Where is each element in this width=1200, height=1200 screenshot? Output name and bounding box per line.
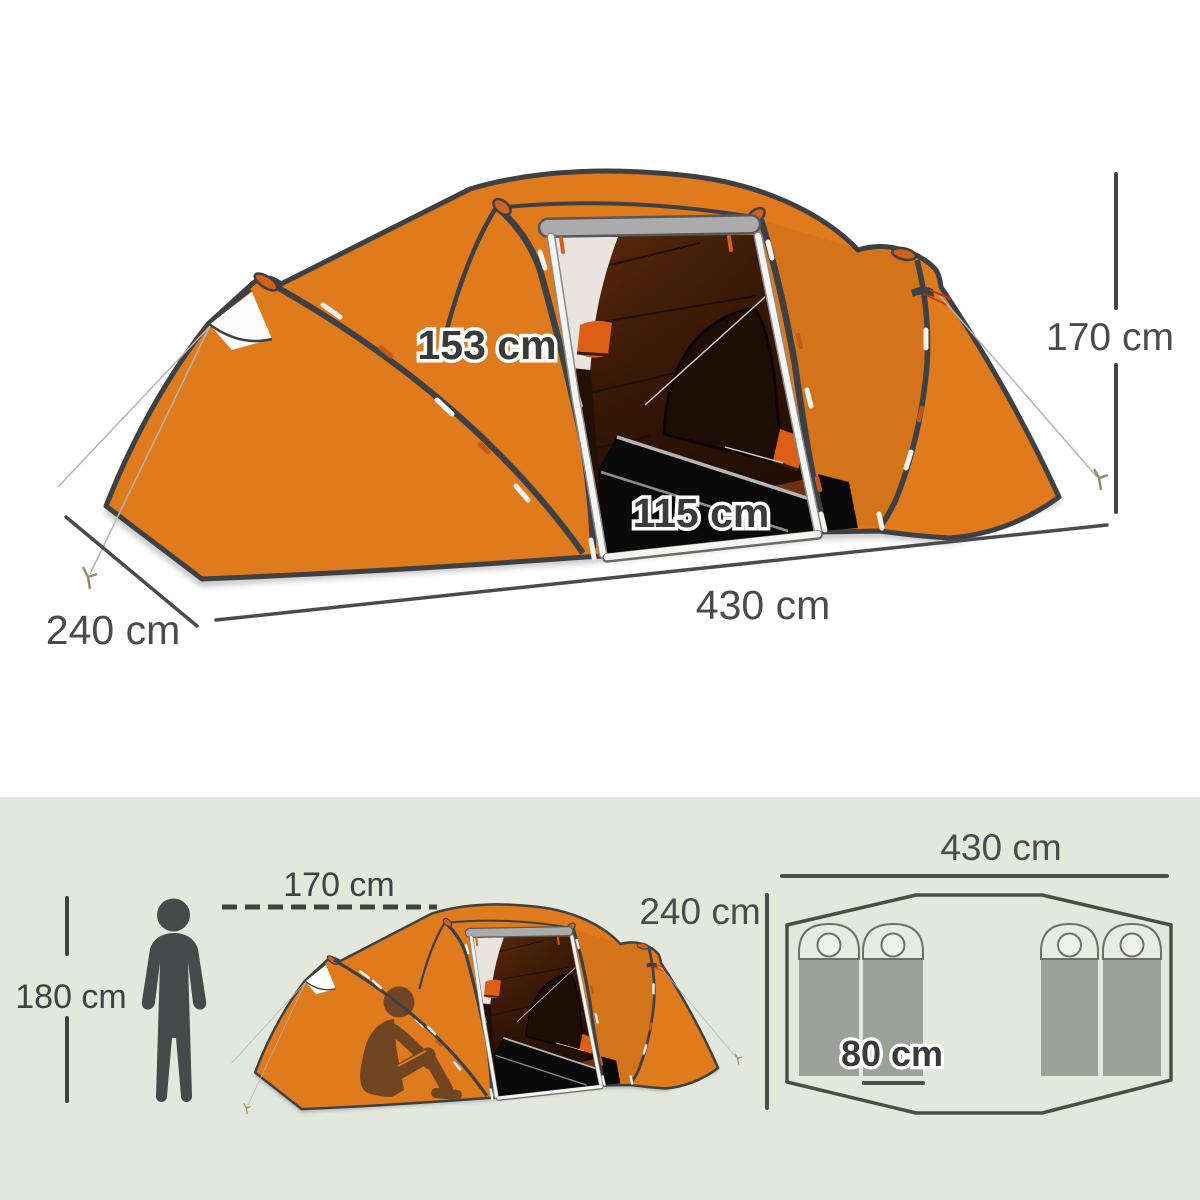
svg-text:170 cm: 170 cm xyxy=(283,866,395,904)
svg-text:240 cm: 240 cm xyxy=(639,891,760,932)
svg-text:153 cm: 153 cm xyxy=(417,322,556,368)
svg-text:430 cm: 430 cm xyxy=(696,582,830,628)
svg-text:115 cm: 115 cm xyxy=(633,490,770,536)
svg-text:430 cm: 430 cm xyxy=(940,827,1061,868)
svg-text:180 cm: 180 cm xyxy=(15,978,127,1016)
svg-text:240 cm: 240 cm xyxy=(46,607,180,653)
svg-text:170 cm: 170 cm xyxy=(1046,316,1174,359)
svg-text:80 cm: 80 cm xyxy=(841,1033,943,1074)
